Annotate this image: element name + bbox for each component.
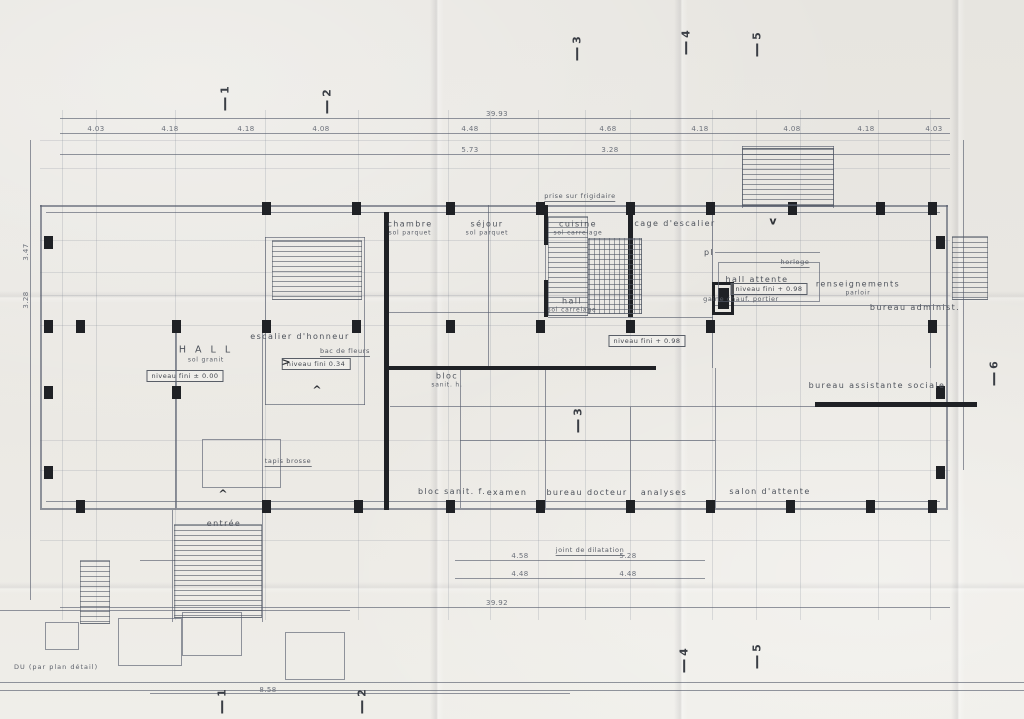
direction-arrow-icon: >	[281, 356, 290, 369]
wall-line	[265, 237, 365, 238]
room-label-sub: parloir	[816, 289, 900, 297]
section-marker-number: 6	[988, 361, 1001, 369]
wall-line	[30, 140, 31, 600]
wall-line	[60, 133, 950, 134]
grid-line	[358, 110, 359, 620]
section-marker-number: 3	[572, 408, 585, 416]
dimension-text: 8.58	[259, 686, 276, 694]
room-label-text: cage d'escalier	[634, 219, 715, 228]
wall-line	[385, 312, 545, 313]
column	[626, 202, 635, 215]
section-marker: 1	[221, 84, 229, 111]
wall-line	[630, 407, 631, 508]
dimension-text: 39.92	[486, 599, 508, 607]
room-label: blocsanit. h.	[431, 371, 462, 389]
section-marker-tick	[221, 701, 223, 714]
section-marker: 2	[323, 87, 331, 114]
section-marker-number: 3	[571, 36, 584, 44]
column	[928, 202, 937, 215]
wall-line	[40, 508, 948, 510]
wall-line	[715, 368, 716, 508]
room-label-text: analyses	[641, 488, 687, 497]
room-label-text: chambre	[387, 219, 432, 228]
annotation: joint de dilatation	[556, 546, 625, 556]
dimension-text: 4.68	[599, 125, 616, 133]
dimension-text: 5.28	[619, 552, 636, 560]
dimension-text: 4.03	[87, 125, 104, 133]
section-marker-tick	[756, 44, 758, 57]
dimension-text: 4.48	[511, 570, 528, 578]
section-marker-number: 1	[216, 689, 229, 697]
column	[44, 386, 53, 399]
grid-line	[40, 140, 950, 141]
wall-line	[0, 690, 1024, 691]
annotation: horloge	[781, 258, 810, 268]
level-annotation: niveau fini + 0.98	[608, 335, 685, 347]
section-marker: 4	[682, 28, 690, 55]
wall-line	[946, 205, 948, 508]
section-marker-tick	[993, 373, 995, 386]
dimension-text: 4.48	[461, 125, 478, 133]
room-label: bureau assistante sociale	[809, 381, 946, 391]
level-annotation: niveau fini ± 0.00	[146, 370, 223, 382]
stair-treads	[742, 148, 834, 206]
wall-line	[548, 317, 713, 318]
room-label-sub: sol carrelage	[548, 306, 597, 314]
section-marker-number: 2	[356, 689, 369, 697]
room-label-text: cuisine	[559, 219, 597, 228]
room-label-text: escalier d'honneur	[250, 332, 349, 341]
dimension-text: 5.73	[461, 146, 478, 154]
column	[44, 466, 53, 479]
outline-box	[45, 622, 79, 650]
annotation: bac de fleurs	[320, 347, 370, 357]
column	[706, 320, 715, 333]
wall-line	[60, 118, 950, 119]
wall-line	[40, 205, 42, 508]
column	[262, 500, 271, 513]
wall-solid	[384, 366, 656, 370]
outline-box	[118, 618, 182, 666]
stair-treads	[952, 236, 988, 300]
dimension-text: 4.08	[783, 125, 800, 133]
wall-line	[0, 682, 1024, 683]
section-marker-number: 5	[751, 32, 764, 40]
outline-box	[182, 612, 242, 656]
column	[876, 202, 885, 215]
blueprint-sheet: DU (par plan détail) H A L Lsol granites…	[0, 0, 1024, 719]
wall-line	[172, 510, 173, 622]
wall-line	[140, 560, 175, 561]
wall-line	[455, 560, 705, 561]
column	[172, 386, 181, 399]
room-label: bloc sanit. f.	[418, 487, 486, 497]
dimension-text: 4.18	[237, 125, 254, 133]
wall-line	[460, 440, 715, 441]
room-label: entrée	[207, 519, 242, 529]
room-label: renseignementsparloir	[816, 279, 900, 297]
grid-line	[40, 240, 950, 241]
grid-line	[448, 110, 449, 620]
room-label: pl	[704, 248, 714, 258]
room-label: analyses	[641, 488, 687, 498]
column	[936, 466, 945, 479]
wall-line	[545, 368, 546, 508]
fold-crease	[674, 0, 688, 719]
column	[866, 500, 875, 513]
column	[536, 320, 545, 333]
stair-treads	[80, 560, 110, 624]
room-label-text: hall	[562, 296, 582, 305]
wall-solid	[815, 402, 977, 407]
room-label: escalier d'honneur	[250, 332, 349, 342]
room-label: hallsol carrelage	[548, 296, 597, 314]
dimension-text: 4.03	[925, 125, 942, 133]
section-marker-tick	[326, 101, 328, 114]
column	[446, 500, 455, 513]
grid-line	[630, 110, 631, 620]
room-label-sub: sanit. h.	[431, 381, 462, 389]
section-marker-tick	[685, 42, 687, 55]
room-label: séjoursol parquet	[466, 219, 509, 237]
column	[626, 500, 635, 513]
wall-line	[175, 325, 177, 508]
wall-line	[455, 578, 705, 579]
column	[354, 500, 363, 513]
room-label: salon d'attente	[729, 487, 810, 497]
section-marker-number: 4	[678, 648, 691, 656]
section-marker-number: 4	[680, 30, 693, 38]
section-marker-tick	[361, 701, 363, 714]
dimension-text: 3.28	[22, 291, 30, 308]
wall-line	[930, 205, 931, 368]
grid-line	[878, 110, 879, 620]
level-annotation: niveau fini + 0.98	[730, 283, 807, 295]
wall-line	[46, 212, 940, 213]
room-label-text: pl	[704, 248, 714, 257]
section-marker: 1	[218, 687, 226, 714]
direction-arrow-icon: ^	[312, 384, 321, 397]
dimension-text: 4.18	[161, 125, 178, 133]
section-marker-number: 5	[751, 644, 764, 652]
column	[44, 236, 53, 249]
column	[44, 320, 53, 333]
room-label: chambresol parquet	[387, 219, 432, 237]
dimension-text: 3.47	[22, 243, 30, 260]
direction-arrow-icon: v	[769, 215, 776, 228]
sheet-note: DU (par plan détail)	[14, 663, 98, 671]
wall-line	[715, 252, 820, 253]
section-marker: 6	[990, 359, 998, 386]
column	[706, 500, 715, 513]
room-label-sub: sol parquet	[466, 229, 509, 237]
column	[626, 320, 635, 333]
column	[262, 202, 271, 215]
dimension-text: 4.48	[619, 570, 636, 578]
annotation: prise sur frigidaire	[544, 192, 615, 202]
room-label-sub: sol parquet	[387, 229, 432, 237]
column	[172, 320, 181, 333]
dimension-text: 4.18	[691, 125, 708, 133]
room-label: examen	[487, 488, 528, 498]
column	[928, 320, 937, 333]
grid-line	[62, 110, 63, 620]
room-label: H A L Lsol granit	[179, 344, 233, 363]
wall-line	[265, 404, 365, 405]
column	[76, 320, 85, 333]
column	[936, 236, 945, 249]
column	[76, 500, 85, 513]
wall-line	[364, 237, 365, 405]
column	[536, 202, 545, 215]
column	[352, 320, 361, 333]
column	[446, 202, 455, 215]
room-label-text: salon d'attente	[729, 487, 810, 496]
column	[536, 500, 545, 513]
section-marker-tick	[683, 660, 685, 673]
section-marker-number: 2	[321, 89, 334, 97]
dimension-text: 39.93	[486, 110, 508, 118]
section-marker: 2	[358, 687, 366, 714]
section-marker: 3	[574, 406, 582, 433]
section-marker-tick	[756, 656, 758, 669]
stair-treads	[272, 240, 362, 300]
grid-line	[490, 110, 491, 620]
wall-solid	[384, 212, 389, 510]
column	[786, 500, 795, 513]
dimension-text: 3.28	[601, 146, 618, 154]
annotation: tapis brosse	[265, 457, 312, 467]
wall-line	[262, 510, 263, 622]
room-label-sub: sol granit	[179, 356, 233, 364]
dimension-text: 4.08	[312, 125, 329, 133]
room-label-text: bureau administ.	[870, 303, 960, 312]
stair-treads	[174, 524, 262, 618]
section-marker: 5	[753, 30, 761, 57]
dimension-text: 4.58	[511, 552, 528, 560]
wall-line	[46, 501, 940, 502]
room-label-text: bloc	[436, 371, 458, 380]
column	[928, 500, 937, 513]
direction-arrow-icon: ^	[218, 488, 227, 501]
section-marker: 4	[680, 646, 688, 673]
room-label-text: examen	[487, 488, 528, 497]
room-label-text: entrée	[207, 519, 242, 528]
room-label-text: bloc sanit. f.	[418, 487, 486, 496]
room-label: cage d'escalier	[634, 219, 715, 229]
room-label: cuisinesol carrelage	[554, 219, 603, 237]
room-label-text: bureau docteur	[546, 488, 627, 497]
room-label: bureau administ.	[870, 303, 960, 313]
section-marker-tick	[577, 420, 579, 433]
section-marker: 3	[573, 34, 581, 61]
room-label-text: bureau assistante sociale	[809, 381, 946, 390]
section-marker-number: 1	[219, 86, 232, 94]
section-marker: 5	[753, 642, 761, 669]
column	[706, 202, 715, 215]
column	[446, 320, 455, 333]
column	[352, 202, 361, 215]
room-label-text: renseignements	[816, 279, 900, 288]
grid-line	[96, 110, 97, 620]
fold-crease	[430, 0, 444, 719]
outline-box	[285, 632, 345, 680]
room-label-text: séjour	[471, 219, 504, 228]
dimension-text: 4.18	[857, 125, 874, 133]
section-marker-tick	[576, 48, 578, 61]
grid-line	[585, 110, 586, 620]
wall-line	[742, 146, 834, 147]
fold-crease	[0, 582, 1024, 594]
room-label: bureau docteur	[546, 488, 627, 498]
grid-line	[538, 110, 539, 620]
room-label-sub: sol carrelage	[554, 229, 603, 237]
room-label-text: H A L L	[179, 344, 233, 355]
section-marker-tick	[224, 98, 226, 111]
wall-line	[963, 140, 964, 470]
annotation: gaine chauf. portier	[703, 295, 779, 303]
level-annotation: niveau fini 0.34	[282, 358, 351, 370]
